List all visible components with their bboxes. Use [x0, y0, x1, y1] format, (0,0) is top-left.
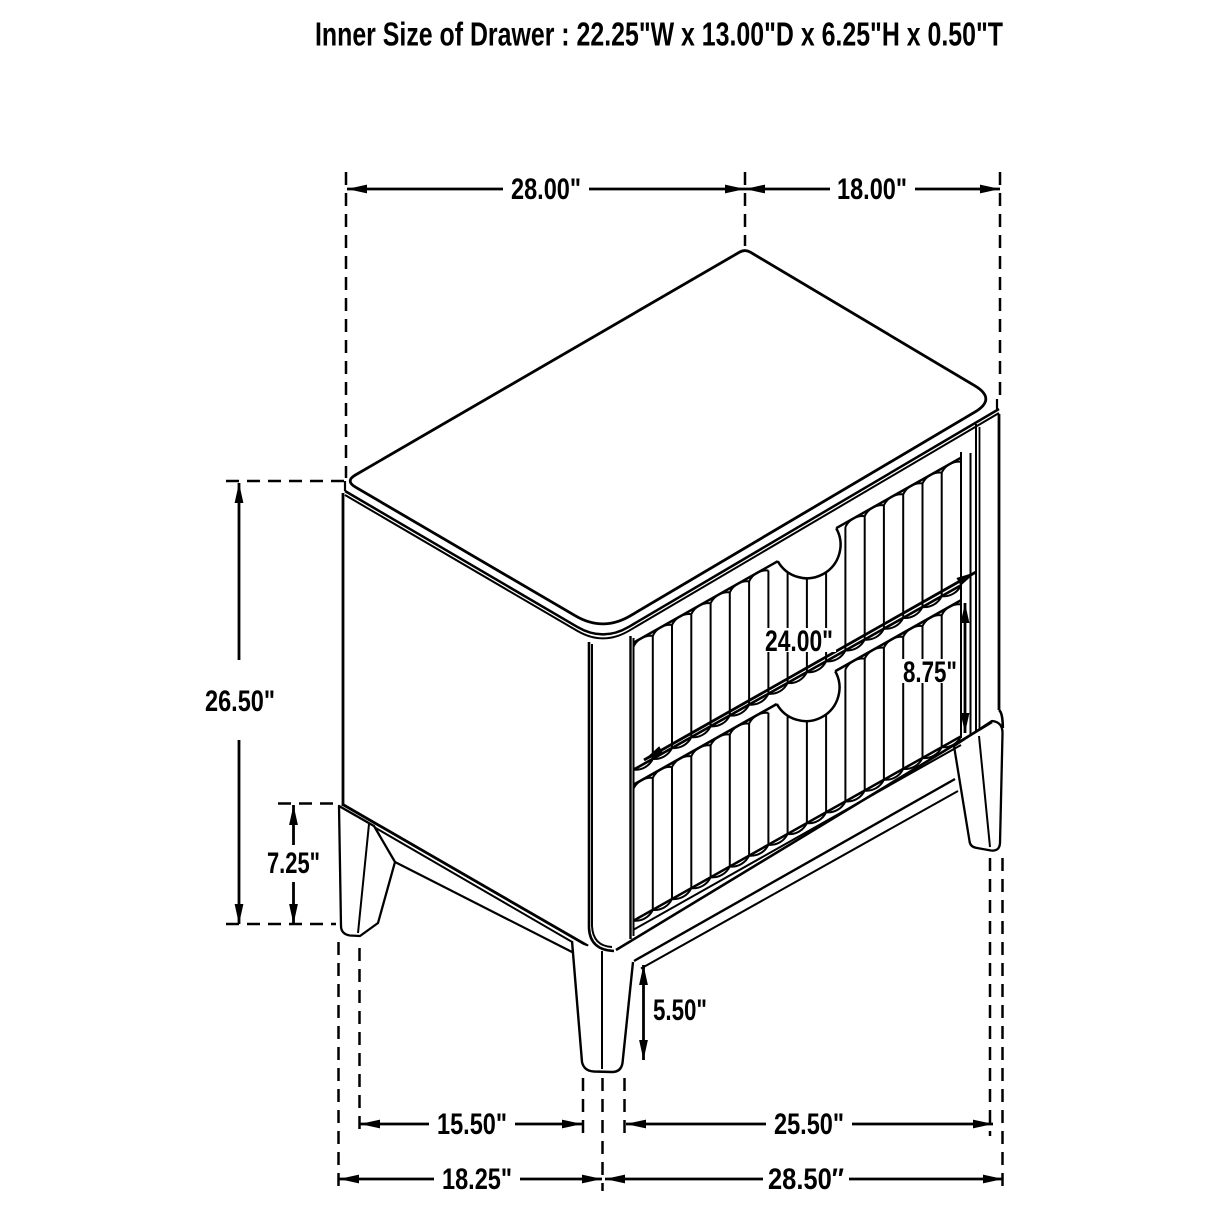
svg-text:25.50": 25.50": [774, 1108, 844, 1141]
svg-text:18.25": 18.25": [442, 1163, 512, 1196]
svg-text:18.00": 18.00": [837, 173, 907, 206]
svg-text:28.00": 28.00": [511, 173, 581, 206]
svg-text:7.25": 7.25": [267, 847, 320, 880]
svg-text:24.00": 24.00": [765, 625, 833, 658]
svg-text:Inner Size of Drawer : 22.25"W: Inner Size of Drawer : 22.25"W x 13.00"D…: [315, 16, 1003, 53]
svg-text:15.50": 15.50": [437, 1108, 507, 1141]
svg-text:5.50": 5.50": [653, 994, 707, 1027]
svg-text:26.50": 26.50": [205, 685, 275, 718]
svg-text:8.75": 8.75": [903, 656, 957, 689]
svg-text:28.50″: 28.50″: [768, 1163, 844, 1196]
